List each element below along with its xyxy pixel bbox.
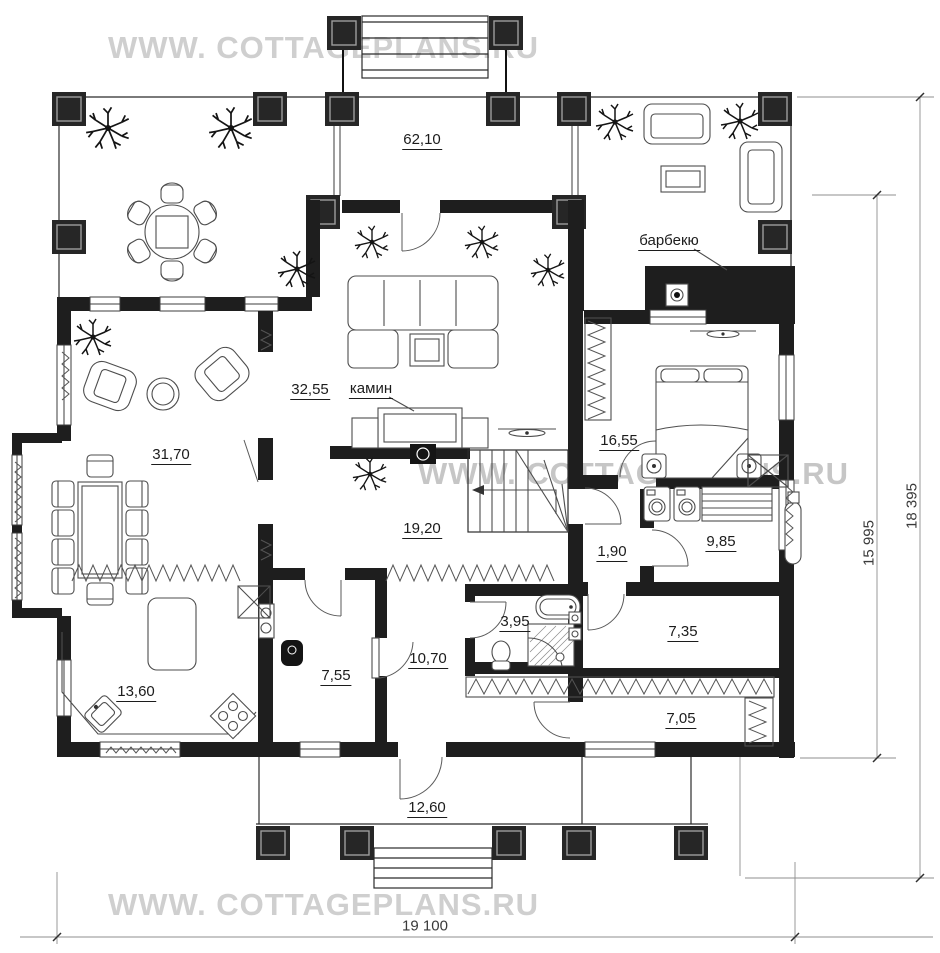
boiler <box>281 640 303 666</box>
hob <box>210 693 255 738</box>
room-label-boiler-room: 7,55 <box>320 668 351 686</box>
floor-plan-page: WWW. COTTAGEPLANS.RU WWW. COTTAGEPLANS.R… <box>0 0 940 953</box>
room-label-bathroom: 3,95 <box>499 614 530 632</box>
callout-fireplace: камин <box>349 381 393 399</box>
top-porch <box>327 16 523 92</box>
room-label-terrace: 62,10 <box>402 132 442 150</box>
floor-plan-drawing <box>0 0 940 953</box>
room-label-dining-room: 31,70 <box>151 447 191 465</box>
dimension-overall-width: 19 100 <box>402 918 448 935</box>
room-label-kitchen: 13,60 <box>116 684 156 702</box>
bottom-porch <box>256 757 708 888</box>
room-label-entrance-hall: 10,70 <box>408 651 448 669</box>
shower <box>528 624 574 666</box>
dimension-overall-height: 18 395 <box>904 483 921 529</box>
dining-table-set <box>52 455 148 605</box>
toilet <box>492 641 510 663</box>
porch-pillar <box>489 16 523 50</box>
bedroom-furniture <box>642 331 761 479</box>
room-label-corridor: 1,90 <box>596 544 627 562</box>
room-label-hall: 19,20 <box>402 521 442 539</box>
room-label-cabinet: 7,35 <box>667 624 698 642</box>
room-label-bedroom: 16,55 <box>599 433 639 451</box>
callout-barbecue: барбекю <box>638 233 700 251</box>
room-label-wardrobe: 7,05 <box>665 711 696 729</box>
porch-pillar <box>327 16 361 50</box>
room-label-living-room: 32,55 <box>290 382 330 400</box>
stairs <box>468 450 568 532</box>
dimension-inner-height: 15 995 <box>861 520 878 566</box>
living-room-sofa-set <box>348 276 498 368</box>
terrace-dining-set <box>124 183 220 281</box>
living-room-tv <box>498 429 556 437</box>
room-label-veranda: 12,60 <box>407 800 447 818</box>
sitting-area <box>80 342 254 413</box>
room-label-utility: 9,85 <box>705 534 736 552</box>
